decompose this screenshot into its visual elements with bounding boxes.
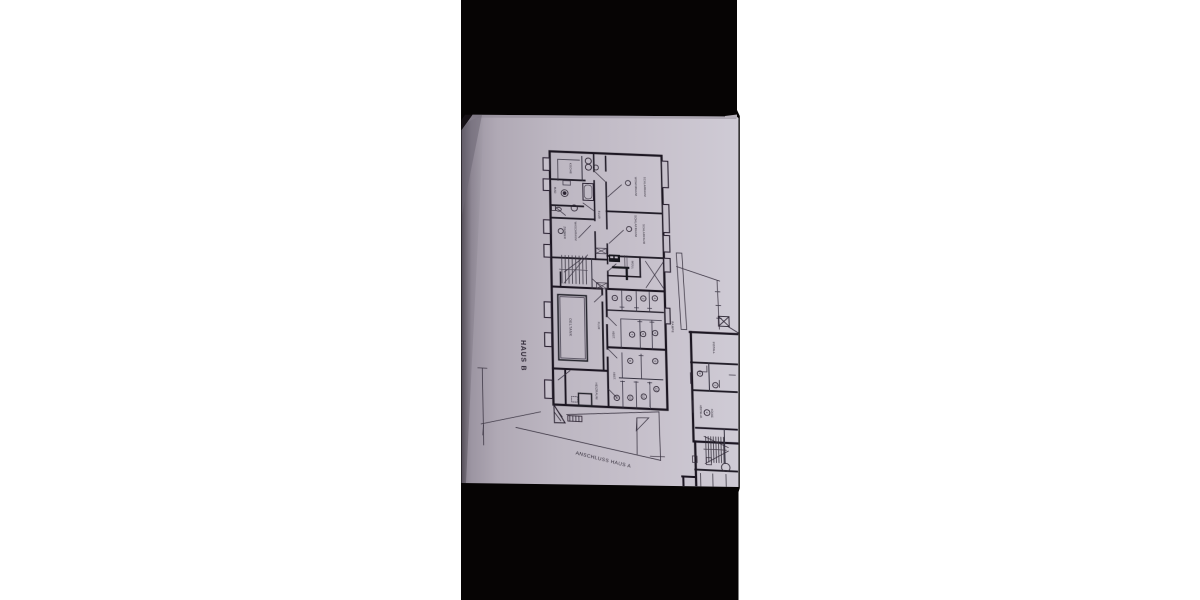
svg-text:WASCHRAUM: WASCHRAUM [573, 222, 577, 241]
svg-text:SCHLAFRAUM: SCHLAFRAUM [642, 224, 647, 244]
svg-text:2: 2 [705, 412, 709, 414]
svg-text:4: 4 [653, 297, 657, 299]
svg-text:10: 10 [628, 396, 632, 400]
svg-text:SCHLAFRAUM: SCHLAFRAUM [643, 177, 648, 197]
svg-text:5: 5 [653, 332, 657, 334]
svg-text:2: 2 [627, 297, 631, 299]
svg-text:OELTANK: OELTANK [568, 318, 572, 337]
svg-text:3: 3 [713, 384, 717, 386]
svg-text:KÜCHE: KÜCHE [710, 409, 713, 418]
svg-text:9: 9 [653, 360, 657, 362]
svg-text:2: 2 [698, 373, 702, 375]
svg-text:13: 13 [654, 387, 658, 391]
svg-text:8: 8 [628, 360, 632, 362]
svg-text:RAMPE: RAMPE [670, 321, 674, 333]
svg-text:11: 11 [615, 396, 619, 400]
svg-text:HEIZRAUM: HEIZRAUM [594, 383, 599, 401]
svg-text:SCHLAFRAUM: SCHLAFRAUM [634, 215, 639, 237]
svg-text:6: 6 [641, 333, 645, 335]
svg-text:1: 1 [613, 297, 617, 299]
svg-text:ZIMMER: ZIMMER [563, 226, 567, 239]
svg-text:INSTALL.: INSTALL. [712, 342, 717, 355]
svg-text:MÜLL: MÜLL [630, 261, 634, 270]
svg-text:7: 7 [630, 334, 634, 336]
svg-text:3: 3 [641, 298, 645, 300]
svg-text:WOHNRAUM: WOHNRAUM [634, 177, 639, 197]
svg-text:BAD: BAD [553, 187, 557, 194]
svg-text:ANSCHLUSS HAUS A: ANSCHLUSS HAUS A [575, 450, 632, 469]
svg-text:HAUS B: HAUS B [519, 340, 527, 372]
svg-text:ABSTELLR.: ABSTELLR. [699, 405, 703, 419]
svg-text:FLUR: FLUR [597, 322, 601, 330]
svg-text:KÜCHE: KÜCHE [569, 163, 573, 174]
svg-text:FLUR: FLUR [597, 211, 601, 219]
svg-text:ABST.: ABST. [611, 331, 614, 339]
svg-text:ABST.: ABST. [612, 372, 615, 380]
svg-text:12: 12 [642, 395, 646, 399]
